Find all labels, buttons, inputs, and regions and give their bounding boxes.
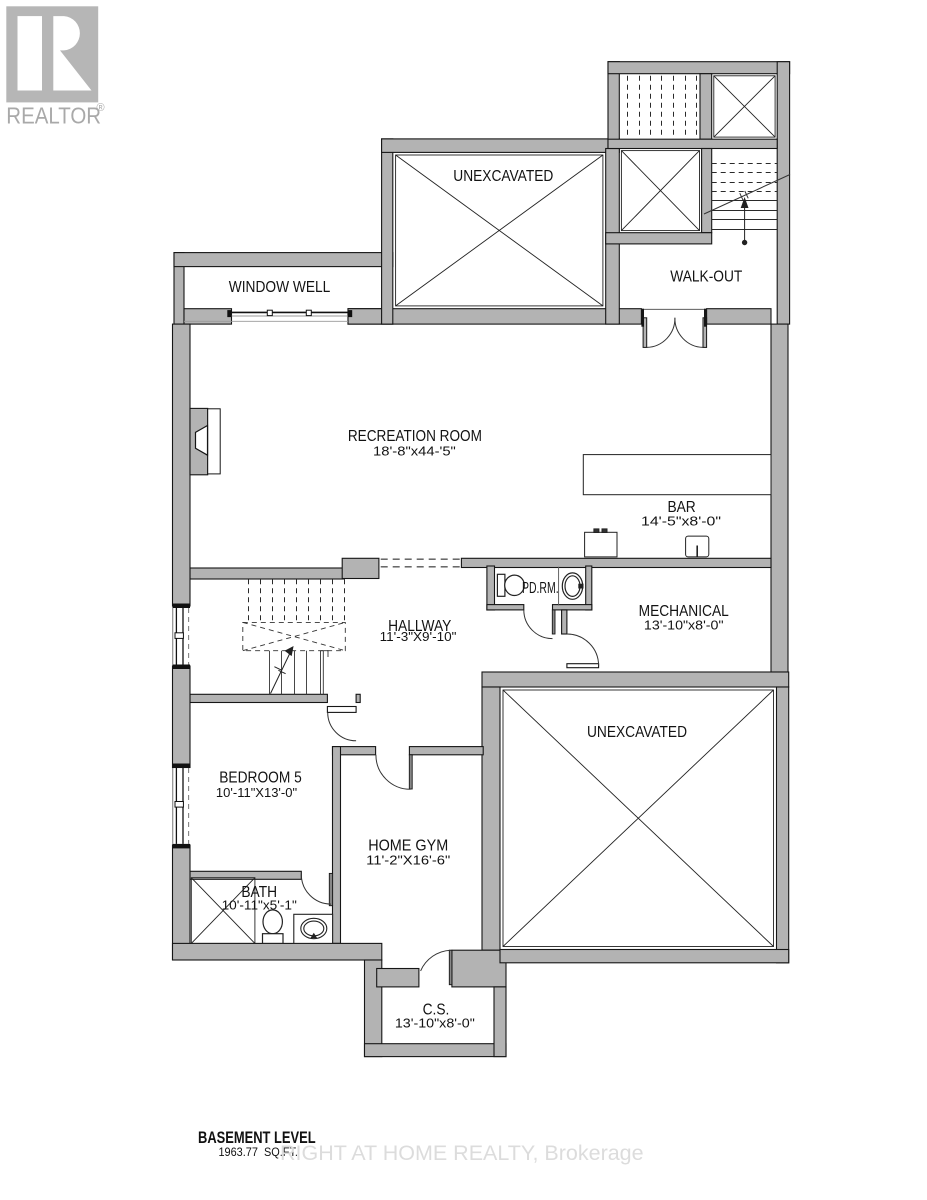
svg-text:13'-10"x8'-0": 13'-10"x8'-0": [395, 1016, 475, 1030]
svg-text:14'-5"x8'-0": 14'-5"x8'-0": [641, 515, 721, 529]
svg-text:11'-3"X9'-10": 11'-3"X9'-10": [380, 629, 457, 644]
svg-text:UNEXCAVATED: UNEXCAVATED: [453, 167, 553, 185]
svg-text:10'-11"x5'-1": 10'-11"x5'-1": [222, 898, 298, 913]
svg-text:18'-8"x44-'5": 18'-8"x44-'5": [373, 443, 456, 458]
svg-text:®: ®: [97, 102, 105, 114]
svg-text:RIGHT AT HOME REALTY, Brokerag: RIGHT AT HOME REALTY, Brokerage: [280, 1141, 644, 1165]
svg-text:WALK-OUT: WALK-OUT: [670, 268, 742, 286]
svg-text:WINDOW WELL: WINDOW WELL: [229, 278, 331, 296]
svg-text:REALTOR: REALTOR: [6, 102, 101, 128]
svg-text:UNEXCAVATED: UNEXCAVATED: [587, 723, 687, 741]
svg-text:11'-2"X16'-6": 11'-2"X16'-6": [366, 852, 450, 867]
svg-text:10'-11"X13'-0": 10'-11"X13'-0": [216, 785, 298, 800]
svg-text:BAR: BAR: [667, 498, 695, 516]
svg-text:PD.RM.: PD.RM.: [522, 579, 559, 597]
svg-text:13'-10"x8'-0": 13'-10"x8'-0": [644, 618, 724, 632]
